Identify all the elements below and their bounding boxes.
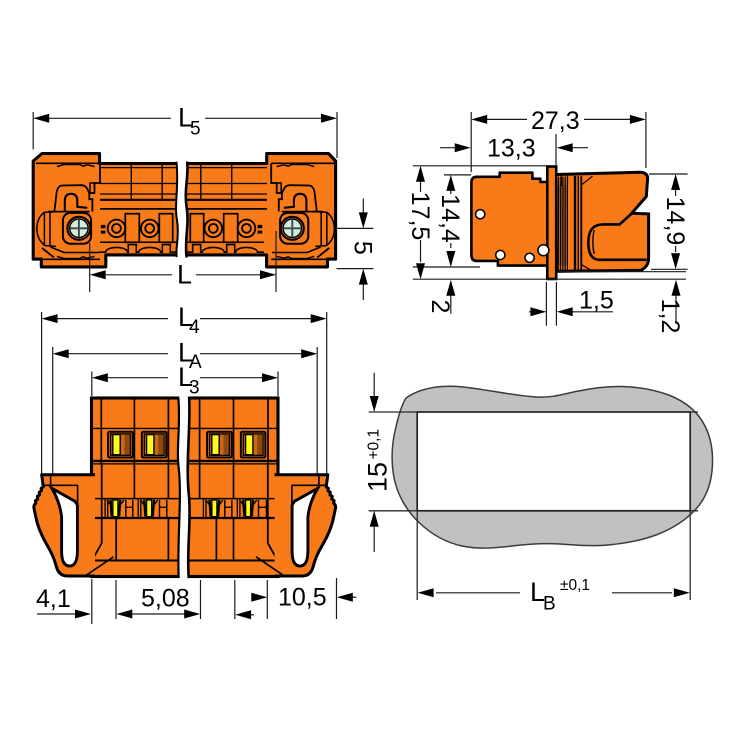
svg-text:2: 2 bbox=[426, 300, 454, 314]
svg-text:14,9: 14,9 bbox=[661, 197, 689, 246]
svg-text:L: L bbox=[177, 260, 192, 290]
svg-text:4,1: 4,1 bbox=[36, 585, 71, 613]
svg-text:10,5: 10,5 bbox=[278, 584, 327, 612]
svg-text:27,3: 27,3 bbox=[531, 107, 580, 135]
svg-text:5: 5 bbox=[349, 241, 377, 255]
svg-text:5: 5 bbox=[190, 119, 201, 140]
svg-text:3: 3 bbox=[189, 378, 200, 399]
svg-text:B: B bbox=[543, 594, 556, 615]
svg-text:+0,1: +0,1 bbox=[366, 429, 383, 460]
svg-text:15: 15 bbox=[363, 462, 393, 492]
svg-text:1,2: 1,2 bbox=[656, 299, 684, 334]
svg-text:±0,1: ±0,1 bbox=[560, 577, 590, 594]
svg-text:17,5: 17,5 bbox=[406, 192, 434, 241]
svg-text:4: 4 bbox=[189, 317, 200, 338]
svg-text:14,4: 14,4 bbox=[436, 194, 464, 243]
svg-text:5,08: 5,08 bbox=[141, 585, 190, 613]
svg-text:13,3: 13,3 bbox=[487, 135, 536, 163]
svg-text:1,5: 1,5 bbox=[579, 287, 614, 315]
